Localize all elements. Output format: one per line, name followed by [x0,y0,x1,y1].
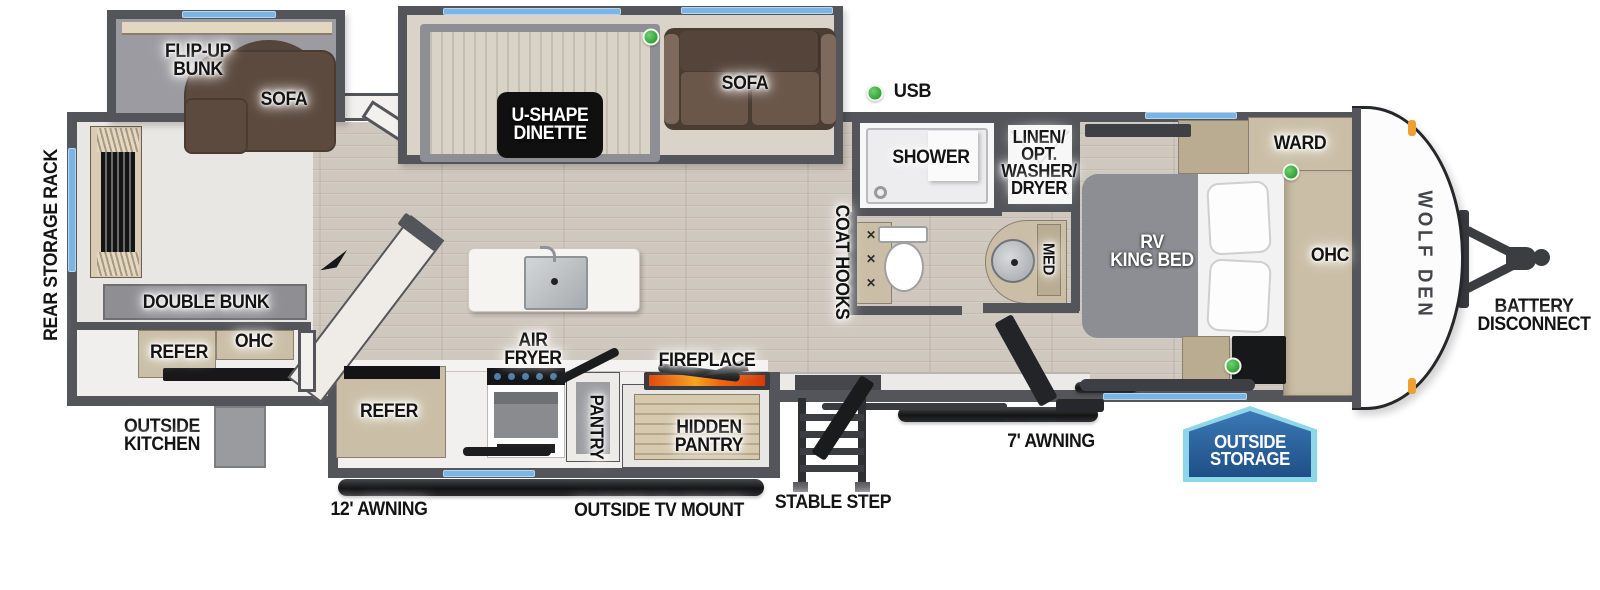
bed-pillow-top [1206,180,1272,255]
rear-rack-bars [101,152,135,252]
clearance-light-top [1408,120,1416,136]
usb-dot-callout [867,85,884,102]
shower-drain [874,186,887,199]
label-rear-refer: REFER [150,344,208,362]
living-sofa-arm-right [821,34,836,124]
outside-kitchen-counter [163,368,297,381]
label-rv-king-bed: RV KING BED [1110,234,1193,270]
kitchen-refer-top [344,366,440,379]
label-air-fryer: AIR FRYER [504,332,561,368]
label-hidden-pantry: HIDDEN PANTRY [675,419,743,455]
range-burner-1 [494,373,501,380]
bunk-sofa-chaise [184,98,248,154]
label-outside-kitchen: OUTSIDE KITCHEN [124,418,200,454]
usb-dot-dinette [643,29,660,46]
window-living-sofa [681,7,833,14]
label-awning-12: 12' AWNING [330,501,427,519]
usb-dot-bed [1225,358,1242,375]
label-awning-7: 7' AWNING [1007,433,1095,451]
living-sofa-arm-left [664,34,679,124]
label-outside-storage: OUTSIDE STORAGE [1210,434,1290,468]
island-sink-drain [551,278,558,285]
label-flip-up-bunk: FLIP-UP BUNK [165,43,231,79]
label-u-shape-dinette: U-SHAPE DINETTE [512,107,589,143]
coat-hook-icon: ✕ [866,276,876,290]
range-burner-2 [508,373,515,380]
stable-step-rail-left [798,398,806,486]
wall-vanity-bottom [983,303,1079,313]
wall-kitchen-bottom [328,468,776,478]
partition-stub-wall [298,330,316,392]
label-rear-ohc: OHC [235,333,273,351]
nightstand [1182,336,1230,380]
window-bunk-slide [182,11,276,18]
label-usb: USB [894,83,931,101]
bed-foot-cabinet [1232,336,1286,384]
wall-bottom-rear [67,396,335,406]
usb-dot-wardrobe [1283,164,1300,181]
label-bedroom-ohc: OHC [1311,247,1349,265]
oven-door [494,392,558,438]
awning-tube-12ft [338,479,764,496]
counter-bar [463,447,551,456]
stable-step-tread-4 [800,465,864,472]
window-bottom-front [1103,393,1247,400]
clearance-light-bottom [1408,378,1416,394]
label-fireplace: FIREPLACE [659,352,756,370]
front-cap-inner-edge [1352,108,1361,408]
wall-toilet-bottom [848,306,962,315]
stable-step-rail-right [858,398,866,486]
label-living-sofa: SOFA [722,75,769,93]
label-bunk-sofa: SOFA [261,91,308,109]
front-cap [1352,106,1464,410]
toilet-tank [878,226,928,243]
hitch-coupler [1506,247,1536,270]
label-pantry: PANTRY [587,395,604,460]
bedroom-bench [1080,379,1255,391]
toilet-bowl [884,242,924,292]
label-double-bunk: DOUBLE BUNK [143,294,269,312]
living-sofa-back-cushions [680,31,820,71]
door-threshold [1056,399,1104,412]
wall-bunkroom-divider [77,322,311,330]
label-coat-hooks: COAT HOOKS [832,205,850,320]
label-stable-step: STABLE STEP [775,494,891,512]
vanity-sink-drain [1011,259,1018,266]
window-kitchen-bottom [443,470,535,477]
window-rear-wall [68,148,76,272]
label-outside-tv-mount: OUTSIDE TV MOUNT [574,502,744,520]
range-burner-3 [522,373,529,380]
label-linen-washer-dryer: LINEN/ OPT. WASHER/ DRYER [1001,129,1077,197]
bedroom-ohc-cabinet [1283,170,1355,396]
label-kitchen-refer: REFER [360,403,418,421]
hitch-ball-knob [1533,249,1550,266]
label-ward: WARD [1274,135,1327,153]
rear-rack-top-slats [97,128,139,152]
coat-hook-icon: ✕ [866,252,876,266]
label-battery-disconnect: BATTERY DISCONNECT [1477,298,1590,334]
brand-logo: WOLF DEN [1415,191,1434,320]
bed-pillow-bottom [1206,258,1272,333]
flip-up-bunk-board [122,22,332,35]
stable-step-foot-left [793,482,808,492]
range-burner-4 [536,373,543,380]
window-dinette [443,8,621,15]
wall-vanity-right [1071,209,1080,311]
rear-rack-bottom-slats [97,252,139,276]
bedroom-top-shelf [1085,124,1191,137]
stable-step-foot-right [855,482,870,492]
label-med: MED [1040,243,1055,275]
floorplan-canvas: ✕ ✕ ✕ REAR STORAGE RACK FLIP-UP [0,0,1600,590]
label-rear-storage-rack: REAR STORAGE RACK [43,149,61,341]
window-bedroom-top [1145,112,1237,119]
outside-kitchen-step [214,406,266,468]
label-shower: SHOWER [892,149,969,167]
coat-hook-icon: ✕ [866,228,876,242]
